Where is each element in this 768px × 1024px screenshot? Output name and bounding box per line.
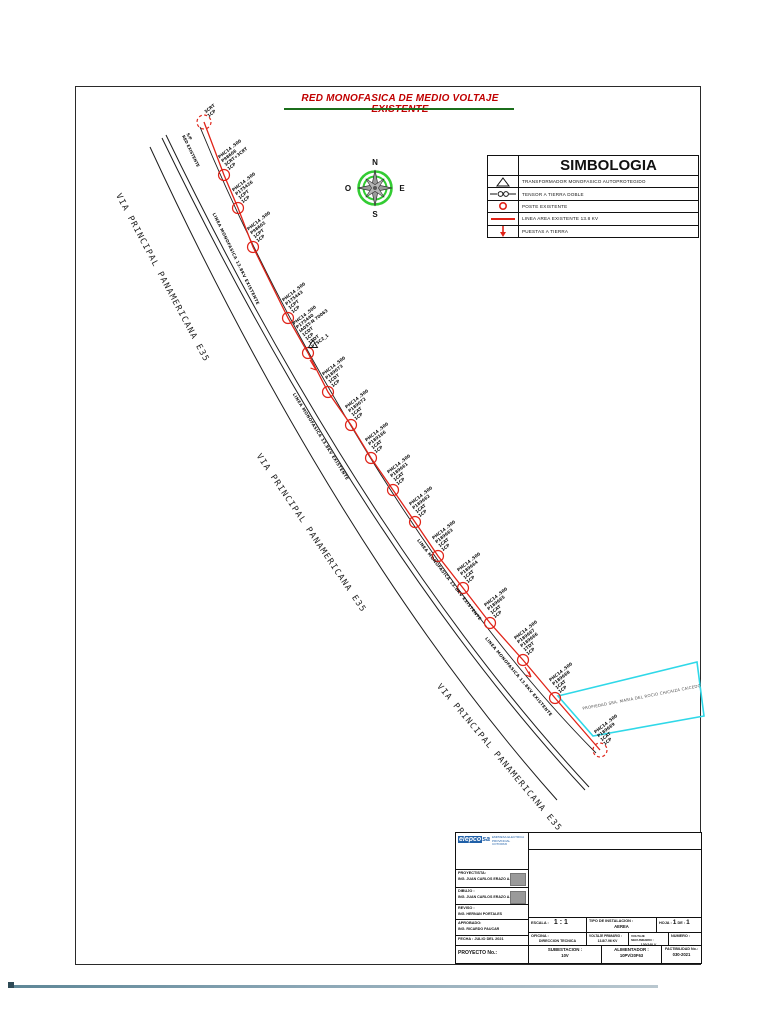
tipo-instalacion-cell: TIPO DE INSTALACION : AEREA [586,917,656,932]
pole-label: 3CRT 1CP [204,104,220,119]
road-name-label: VIA PRINCIPAL PANAMERICANA E35 [254,452,368,615]
pole-label: PHC14 .500 P175426 1CPT 1CP [232,172,266,205]
pole-label: PHC14 .500 P189663 1CAT 1CP [432,520,466,553]
stamp [510,873,526,886]
alimentador-cell: ALIMENTADOR : 10PV/20F63 [601,945,661,963]
pole-label: PHC14 .500 P189661 1CAT 1CP [387,454,421,487]
reviso-cell: REVISO : ING. HERNAN PORTALES [456,904,528,919]
pole-label: PHC14 .500 P189662 1CAT 1CP [409,486,443,519]
pole-label: PHC14 .500 P189665 1CAT 1CP [484,587,518,620]
oficina-cell: OFICINA : DIRECCION TECNICA [528,932,586,945]
pole-label: PHC14 .500 P189669 1CAT 1CP [594,714,628,747]
numero-cell: NUMERO : [668,932,701,945]
line-name-label: LINEA MONOFASICA 13.8KV EXISTENTE [292,392,350,481]
stamp [510,891,526,904]
proyecto-cell: PROYECTO No.: [456,945,528,963]
proyectista-cell: PROYECTISTA: ING. JUAN CARLOS ERAZO A. [456,869,528,887]
pole-label: PHC14 .500 P98602 1CPT 1CP [247,211,281,244]
escala-cell: ESCALA : 1 : 1 [528,917,586,932]
subestacion-cell: SUBESTACION : 10V [528,945,601,963]
aprobado-cell: APROBADO: ING. RICARDO PAUCAR [456,919,528,935]
road-name-label: VIA PRINCIPAL PANAMERICANA E35 [113,192,211,364]
voltaje-primario-cell: VOLTAJE PRIMARIO : 13.8/7.96 KV [586,932,628,945]
factibilidad-cell: FACTIBILIDAD No.: 030-2021 [661,945,701,963]
pole-label: PHC14 .500 P98606 3CRT+3CRT 1CP [218,139,252,172]
elepco-logo: elepcosa [458,836,490,843]
scan-artifact-line [8,985,658,988]
pole-label: PHC14 .500 P189667 P189666 1TDT 1CP [514,620,551,657]
start-note-label: S/P RED EXISTENTE [181,132,205,168]
logo-side-text: EMPRESA ELECTRICA PROVINCIAL COTOPAXI [492,836,526,847]
logo-cell: elepcosa EMPRESA ELECTRICA PROVINCIAL CO… [456,833,528,869]
hoja-cell: HOJA : 1 DE : 1 [656,917,701,932]
property-owner-label: PROPIEDAD SRA. MARIA DEL ROCIO CHICAIZA … [582,683,701,711]
pole-label: PHC14 .500 P189166 1CAT 1CP [365,422,399,455]
notes-cell [528,849,701,917]
pole-label: PHC14 .500 P189072 1CAT 1CP [345,389,379,422]
line-name-label: LINEA MONOFASICA 13.8KV EXISTENTE [484,636,553,717]
dibujo-cell: DIBUJO : ING. JUAN CARLOS ERAZO A. [456,887,528,904]
scan-artifact-dot [8,982,14,988]
pole-label: PHC14 .500 P189073 1CDT 1CP [322,356,356,389]
drawing-page: RED MONOFASICA DE MEDIO VOLTAJE EXISTENT… [0,0,768,1024]
top-strip-cell [528,833,701,849]
pole-label: PHC14 .500 P189664 1CAT 1CP [457,552,491,585]
title-block: elepcosa EMPRESA ELECTRICA PROVINCIAL CO… [455,832,702,964]
voltaje-secundario-cell: VOLTAJE SECUNDARIO : 120/240 V [628,932,668,945]
pole-label: PHC14 .500 P189668 1CAT 1CP [549,662,583,695]
fecha-cell: FECHA : JULIO DEL 2021 [456,935,528,945]
